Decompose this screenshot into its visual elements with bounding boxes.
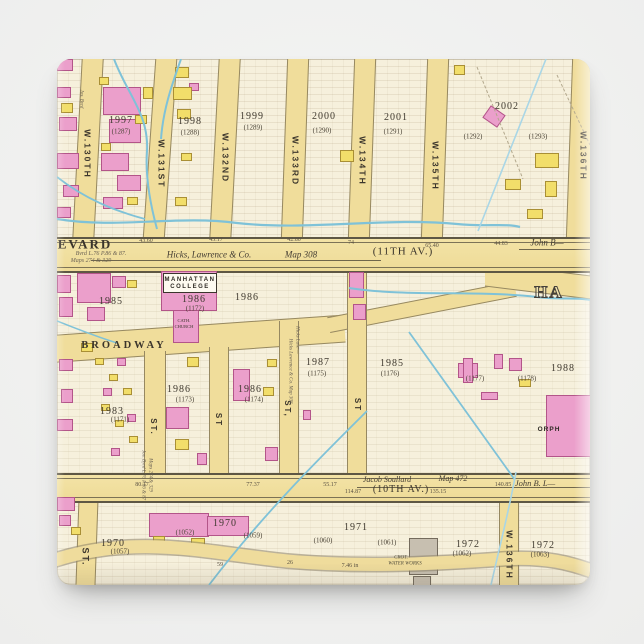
street-label-w132: W.132ND (221, 133, 230, 183)
street-label-w133: W.133RD (291, 136, 300, 186)
block-number: 1987 (306, 358, 330, 368)
orphan-asylum-label: ORPH (538, 427, 561, 434)
ward-number: (1174) (245, 397, 263, 404)
block-number: 1970 (213, 519, 237, 529)
block-number: 1986 (167, 385, 191, 395)
street-label-w131: W.131ST (157, 140, 166, 189)
block-number: 1971 (344, 523, 368, 533)
street-label-w130: W.130TH (83, 129, 92, 178)
deed-reference: Bvrd L.76 P.86 & 87. (76, 251, 127, 257)
stream (161, 59, 181, 139)
block-number: 1986 (182, 295, 206, 305)
road-number: 7.46 in (342, 563, 359, 569)
street-label-w136-bottom: W.136TH (505, 530, 514, 579)
block-number: 1985 (99, 297, 123, 307)
block-number: 1986 (235, 293, 259, 303)
stream (57, 177, 145, 219)
surveyor-side-note: Hicks Lawr— (295, 326, 300, 354)
block-number: 1985 (380, 359, 404, 369)
street-stub-label: ST. (81, 547, 90, 566)
road-number: 59 (217, 562, 223, 568)
block-number: 2002 (495, 102, 519, 112)
waterworks-label-line1: CROT. (394, 556, 408, 561)
ward-number: (1059) (244, 533, 263, 540)
block-number: 1986 (238, 385, 262, 395)
measurement: 74 (348, 240, 354, 246)
church-label-line1: CATH. (178, 319, 191, 324)
ward-number: (1175) (308, 371, 326, 378)
owner-annotation: Jos. Byrd (79, 90, 84, 109)
deed-side-note: Jos. Byrd L.76 P.86 & 87 (141, 450, 146, 500)
photo-background: MANHATTAN COLLEGE (0, 0, 644, 644)
street-stub-label: ST (353, 398, 361, 412)
ward-number: (1171) (111, 417, 129, 424)
block-number: 1972 (456, 540, 480, 550)
boulevard-name-partial: EVARD (58, 238, 113, 251)
stream-diagonal (478, 59, 546, 231)
measurement: 114.87 (345, 489, 361, 495)
surveyor-side-note: Hicks Lawrence & Co. Map 308 (288, 339, 293, 404)
ward-number: (1063) (531, 552, 550, 559)
stream (409, 332, 515, 480)
ward-number: (1293) (529, 134, 548, 141)
block-number: 1998 (178, 117, 202, 127)
ward-number: (1062) (453, 551, 472, 558)
ward-number: (1061) (378, 540, 397, 547)
street-label-w135: W.135TH (431, 141, 440, 190)
measurement: 55.17 (323, 482, 337, 488)
block-number: 1997 (109, 116, 133, 126)
block-number: 1988 (551, 364, 575, 374)
ward-number: (1178) (518, 376, 536, 383)
stream-main (57, 219, 520, 227)
owner-name: Jacob Soullard (363, 476, 411, 484)
measurement: 42.80 (287, 237, 301, 243)
map-magnet: MANHATTAN COLLEGE (57, 59, 590, 585)
ward-number: (1172) (186, 306, 204, 313)
ward-number: (1173) (176, 397, 194, 404)
ward-number: (1060) (314, 538, 333, 545)
ward-number: (1289) (244, 125, 263, 132)
measurement: 44.83 (494, 241, 508, 247)
ward-number: (1291) (384, 129, 403, 136)
surveyor-name: Hicks, Lawrence & Co. (167, 251, 251, 260)
measurement: 77.37 (246, 482, 260, 488)
street-label-w136-top: W.136TH (579, 131, 588, 180)
ward-number: (1176) (381, 371, 399, 378)
block-number: 1972 (531, 541, 555, 551)
avenue-label-10th: (10TH AV.) (373, 485, 429, 495)
owner-name: John B. L— (515, 479, 555, 488)
church-label-line2: CHURCH (175, 325, 194, 330)
block-number: 1999 (240, 112, 264, 122)
owner-name: John B— (530, 239, 563, 248)
district-name-partial: HA (534, 284, 564, 301)
street-label-w134: W.134TH (358, 136, 367, 185)
road-number: 26 (287, 560, 293, 566)
ward-number: (1177) (466, 376, 484, 383)
avenue-label-11th: (11TH AV.) (373, 247, 434, 258)
measurement: 45.17 (209, 237, 223, 243)
maps-reference: Maps 274 & 329 (71, 258, 112, 264)
street-stub-label: ST. (149, 418, 157, 436)
ward-number: (1287) (112, 129, 131, 136)
measurement: 140.85 (495, 482, 512, 488)
ward-number: (1057) (111, 549, 130, 556)
block-number: 2000 (312, 112, 336, 122)
street-stub-label: ST (214, 413, 222, 427)
stream (114, 59, 157, 229)
block-number: 2001 (384, 113, 408, 123)
streams-overlay (57, 59, 590, 585)
atlas-map: MANHATTAN COLLEGE (57, 59, 590, 585)
waterworks-label-line2: WATER WORKS (388, 562, 422, 567)
map-number: Map 472 (439, 475, 468, 483)
ward-number: (1292) (464, 134, 483, 141)
ward-number: (1052) (176, 530, 195, 537)
ward-number: (1290) (313, 128, 332, 135)
map-number: Map 308 (285, 251, 317, 260)
ward-number: (1288) (181, 130, 200, 137)
lot-boundary-diagonal (477, 67, 523, 179)
broadway-label: BROADWAY (81, 341, 166, 352)
measurement: 43.60 (139, 238, 153, 244)
measurement: 80.17 (135, 482, 149, 488)
measurement: 135.15 (430, 489, 447, 495)
